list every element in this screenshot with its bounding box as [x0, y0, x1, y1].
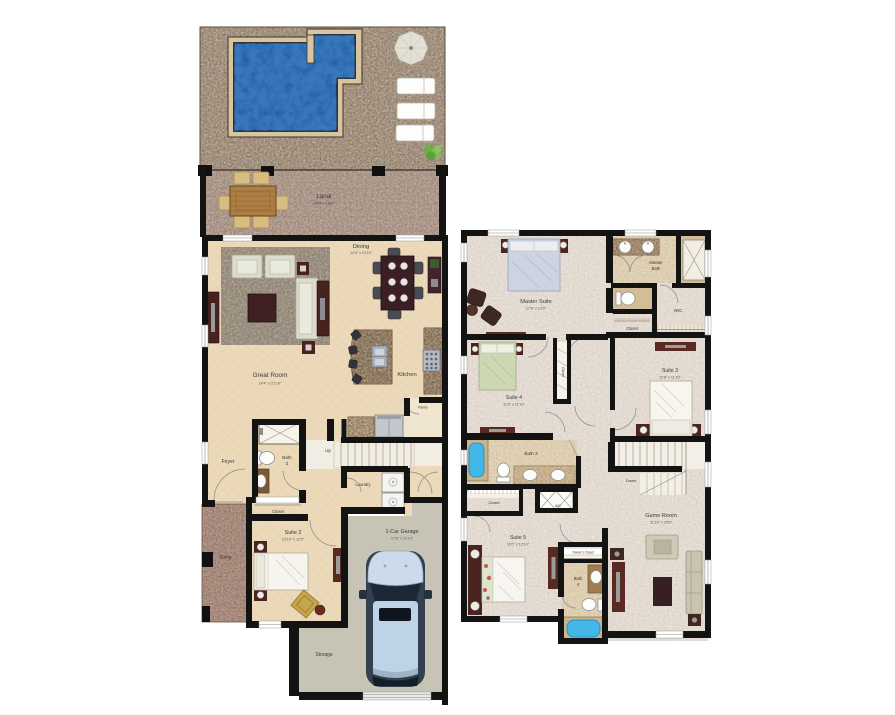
svg-text:Foyer: Foyer	[222, 459, 235, 465]
svg-text:Pantry: Pantry	[418, 406, 428, 410]
svg-text:Closet: Closet	[626, 326, 639, 331]
svg-text:Storage: Storage	[315, 652, 333, 658]
svg-text:Bath 3: Bath 3	[524, 451, 538, 456]
svg-text:Game Room: Game Room	[645, 513, 677, 519]
svg-text:Closet: Closet	[488, 500, 500, 505]
svg-text:17'6" x 21'10": 17'6" x 21'10"	[391, 537, 414, 541]
svg-text:14'0" x 10'10": 14'0" x 10'10"	[350, 251, 372, 255]
svg-text:11'10" x 15'8": 11'10" x 15'8"	[650, 521, 673, 525]
svg-text:Master Suite: Master Suite	[520, 299, 551, 305]
svg-text:Master: Master	[649, 260, 663, 265]
svg-text:A/C: A/C	[555, 504, 561, 508]
svg-text:29'4" x 10'0": 29'4" x 10'0"	[314, 202, 334, 206]
svg-text:Suite 3: Suite 3	[662, 368, 678, 374]
svg-text:Closet: Closet	[272, 509, 285, 514]
svg-text:Bath: Bath	[651, 266, 661, 271]
svg-text:11'0" x 11'10": 11'0" x 11'10"	[503, 403, 525, 407]
svg-text:Suite 2: Suite 2	[285, 530, 302, 536]
svg-text:Bath: Bath	[282, 455, 292, 460]
svg-text:Up: Up	[325, 448, 331, 453]
svg-text:Great Room: Great Room	[253, 372, 288, 379]
svg-text:10'10" x 12'2": 10'10" x 12'2"	[282, 538, 305, 542]
svg-text:Entry: Entry	[220, 555, 232, 561]
svg-text:Kitchen: Kitchen	[397, 372, 416, 378]
svg-text:1-Car Garage: 1-Car Garage	[386, 529, 419, 535]
svg-text:14'4" x 21'10": 14'4" x 21'10"	[259, 382, 283, 386]
svg-text:Closet: Closet	[561, 367, 565, 377]
svg-text:2: 2	[286, 461, 289, 466]
svg-text:17'8" x 12'0": 17'8" x 12'0"	[526, 307, 547, 311]
svg-text:Bath: Bath	[574, 576, 583, 581]
svg-text:Dining: Dining	[353, 244, 369, 250]
svg-text:Owner's Closet: Owner's Closet	[572, 551, 594, 555]
svg-text:11'0" x 12'10": 11'0" x 12'10"	[507, 543, 530, 547]
svg-text:WIC: WIC	[674, 308, 683, 313]
svg-text:Suite 4: Suite 4	[506, 395, 522, 401]
svg-text:Down: Down	[626, 478, 636, 483]
svg-text:11'8" x 11'10": 11'8" x 11'10"	[659, 376, 681, 380]
svg-text:Lanai: Lanai	[316, 193, 331, 200]
svg-text:Suite 5: Suite 5	[510, 535, 526, 541]
